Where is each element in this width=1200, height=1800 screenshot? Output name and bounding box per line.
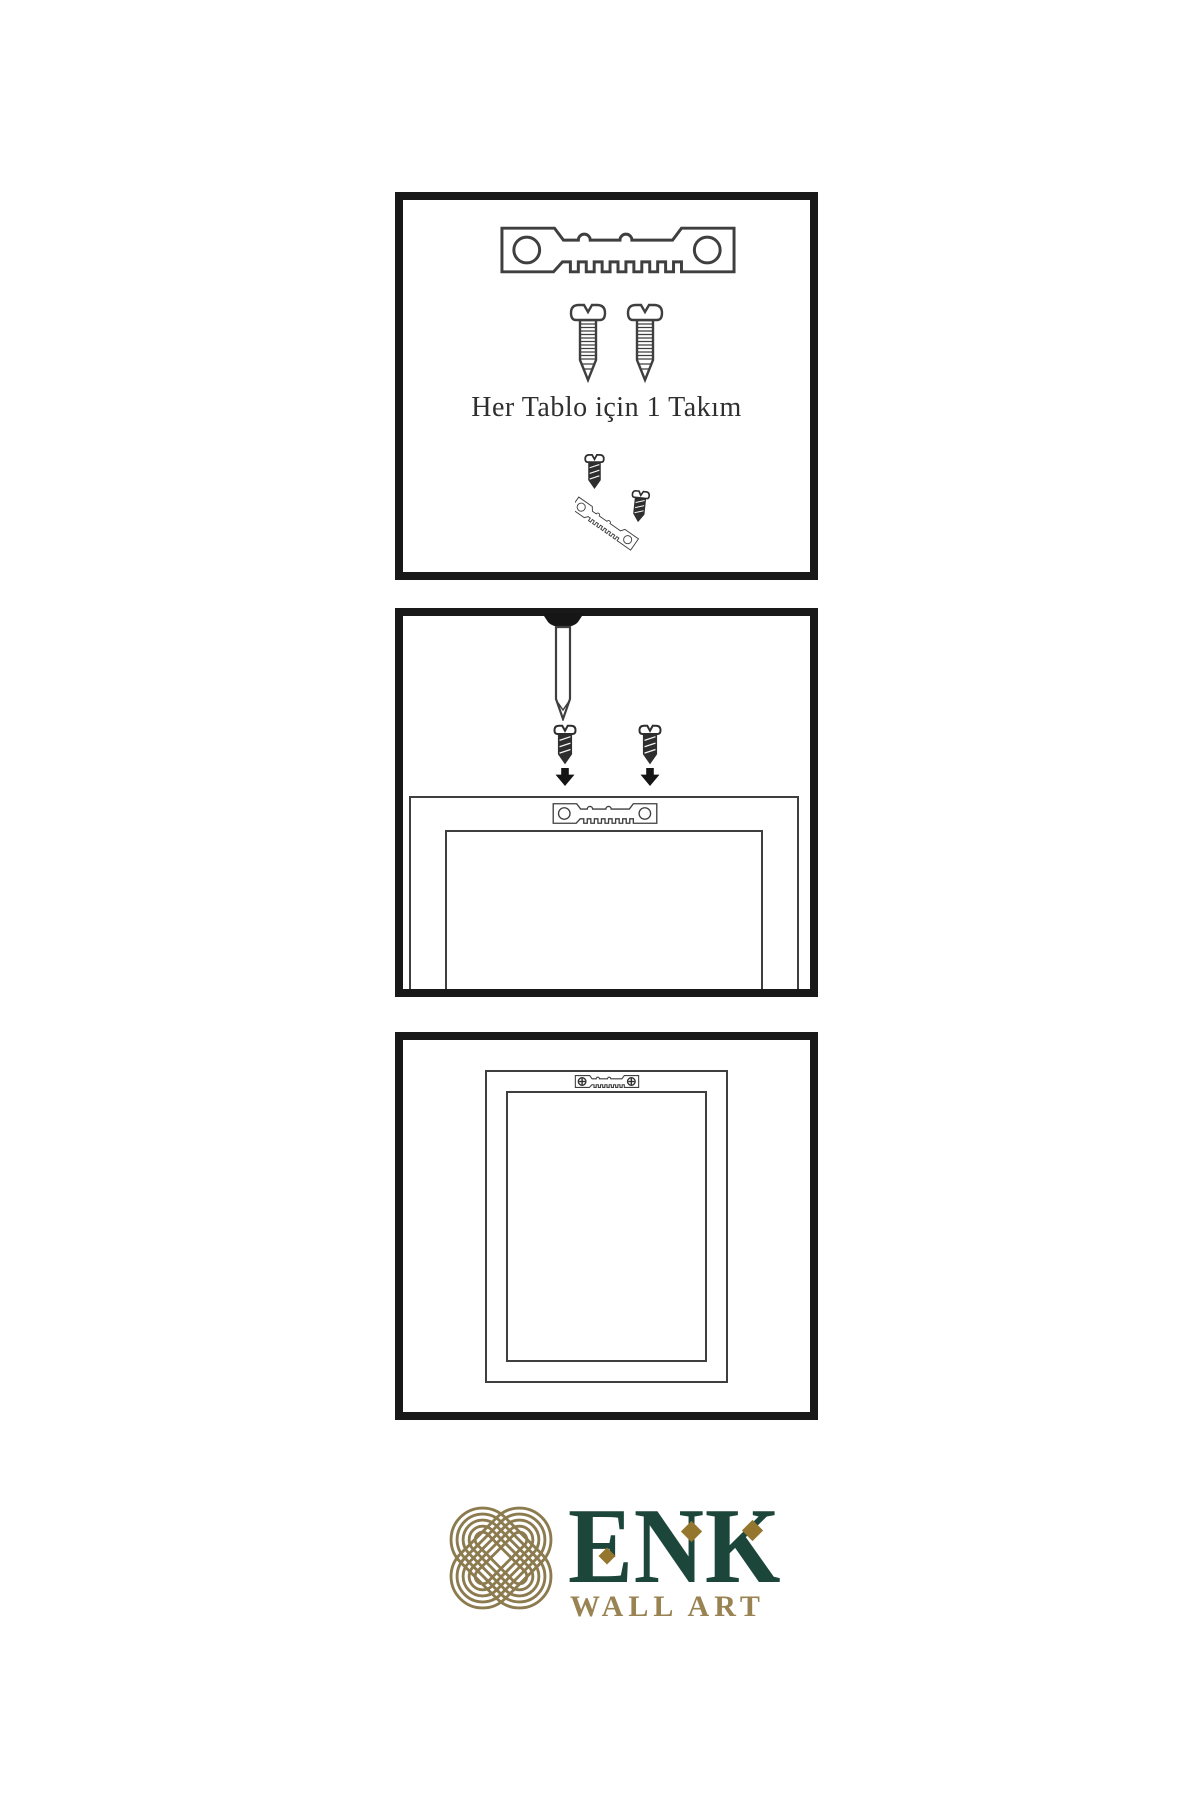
- sawtooth-hanger-screwed-icon: [574, 1073, 640, 1090]
- instruction-sheet: Her Tablo için 1 Takım: [0, 0, 1200, 1800]
- screw-with-arrow-icon: [637, 723, 663, 787]
- brand-tagline: WALL ART: [570, 1592, 765, 1622]
- panel-kit: Her Tablo için 1 Takım: [395, 192, 818, 580]
- frame-back-inner-edge: [445, 830, 763, 989]
- wall-nail-icon: [541, 613, 585, 721]
- screw-with-arrow-icon: [552, 723, 578, 787]
- sawtooth-hanger-icon: [497, 220, 739, 280]
- brand-name: ENK: [568, 1493, 781, 1601]
- frame-back-inner-edge: [506, 1091, 707, 1362]
- screw-into-hanger-detail-icon: [575, 450, 667, 556]
- kit-caption: Her Tablo için 1 Takım: [403, 392, 810, 424]
- knot-logo-icon: [436, 1488, 566, 1628]
- screw-icon: [568, 302, 608, 384]
- screw-icon: [625, 302, 665, 384]
- sawtooth-hanger-on-frame-icon: [551, 800, 659, 827]
- panel-mounting: [395, 608, 818, 997]
- panel-mounted: [395, 1032, 818, 1420]
